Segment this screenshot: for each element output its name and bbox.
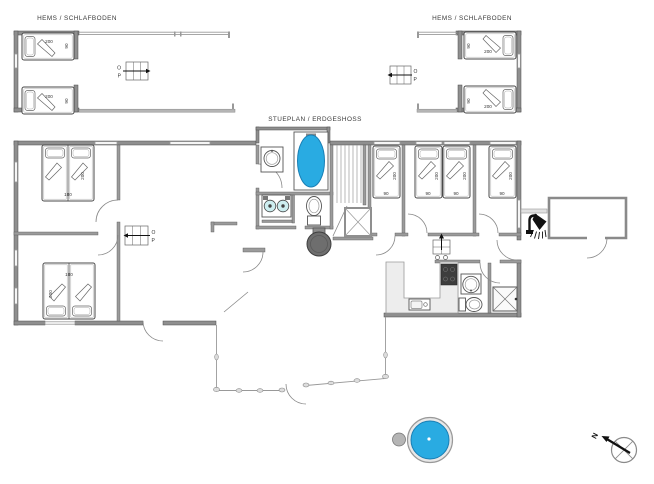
bedroom-b: 180 200 [43, 263, 95, 319]
bed-width-label: 90 [64, 43, 69, 49]
annex-building [549, 198, 626, 258]
bed-length-label: 200 [508, 172, 513, 180]
annex-link-wall [521, 209, 547, 213]
bathroom-2 [459, 274, 482, 312]
bed-width-label: 90 [64, 98, 69, 104]
closet-icon [345, 208, 371, 236]
stair-up-label: O [117, 66, 121, 72]
loft-right: 200 90 200 90 O P [388, 31, 522, 113]
bed-length-label: 200 [484, 49, 492, 54]
wood-stove-icon [307, 228, 331, 256]
bed-width-label: 90 [466, 43, 471, 49]
stair-up-label: O [152, 230, 156, 236]
stair-down-label: P [118, 74, 122, 80]
outdoor-shower-icon [526, 214, 547, 240]
stair-down-label: P [152, 238, 156, 244]
stair-icon-right [433, 234, 450, 260]
stair-up-label: O [414, 69, 418, 75]
compass-rose: N [590, 431, 637, 462]
loft-left-title: HEMS / SCHLAFBODEN [37, 15, 117, 22]
loft-right-stair-icon: O P [388, 66, 418, 84]
bed-width-label: 90 [499, 191, 505, 196]
stair-icon-left: O P [124, 226, 156, 245]
bed-width-label: 90 [466, 98, 471, 104]
north-label: N [590, 431, 600, 440]
bed-length-label: 200 [462, 172, 467, 180]
bedroom-c: 200 90 [373, 146, 400, 198]
bed-length-label: 200 [48, 290, 53, 298]
bed-length-label: 200 [45, 39, 53, 44]
bed-length-label: 200 [484, 104, 492, 109]
bed-length-label: 200 [392, 172, 397, 180]
bed-width-label: 180 [64, 192, 72, 197]
hot-tub-icon [393, 418, 453, 463]
bed-length-label: 200 [80, 172, 85, 180]
bed-width-label: 90 [383, 191, 389, 196]
loft-left-stair-icon: O P [117, 62, 150, 80]
kitchen [386, 262, 458, 313]
bed-length-label: 200 [45, 94, 53, 99]
bathtub-icon [298, 135, 325, 187]
floorplan-drawing: HEMS / SCHLAFBODEN HEMS / SCHLAFBODEN ST… [0, 0, 654, 479]
bay-window-wall [214, 317, 389, 404]
shower-room [493, 287, 517, 311]
bedroom-d: 200 90 200 90 [415, 146, 470, 198]
stove-icon [441, 264, 457, 285]
bedroom-a: 180 200 [42, 145, 94, 201]
loft-right-title: HEMS / SCHLAFBODEN [432, 15, 512, 22]
bed-width-label: 90 [453, 191, 459, 196]
bed-loft-right-top [464, 32, 516, 59]
stair-down-label: P [414, 77, 418, 83]
bed-width-label: 90 [425, 191, 431, 196]
bed-length-label: 200 [434, 172, 439, 180]
floorplan-page: HEMS / SCHLAFBODEN HEMS / SCHLAFBODEN ST… [0, 0, 654, 479]
main-floor-title: STUEPLAN / ERDGESHOSS [268, 116, 362, 123]
bedroom-e: 200 90 [489, 146, 516, 198]
loft-left: 200 90 200 90 O P [14, 31, 235, 114]
bed-width-label: 180 [65, 272, 73, 277]
